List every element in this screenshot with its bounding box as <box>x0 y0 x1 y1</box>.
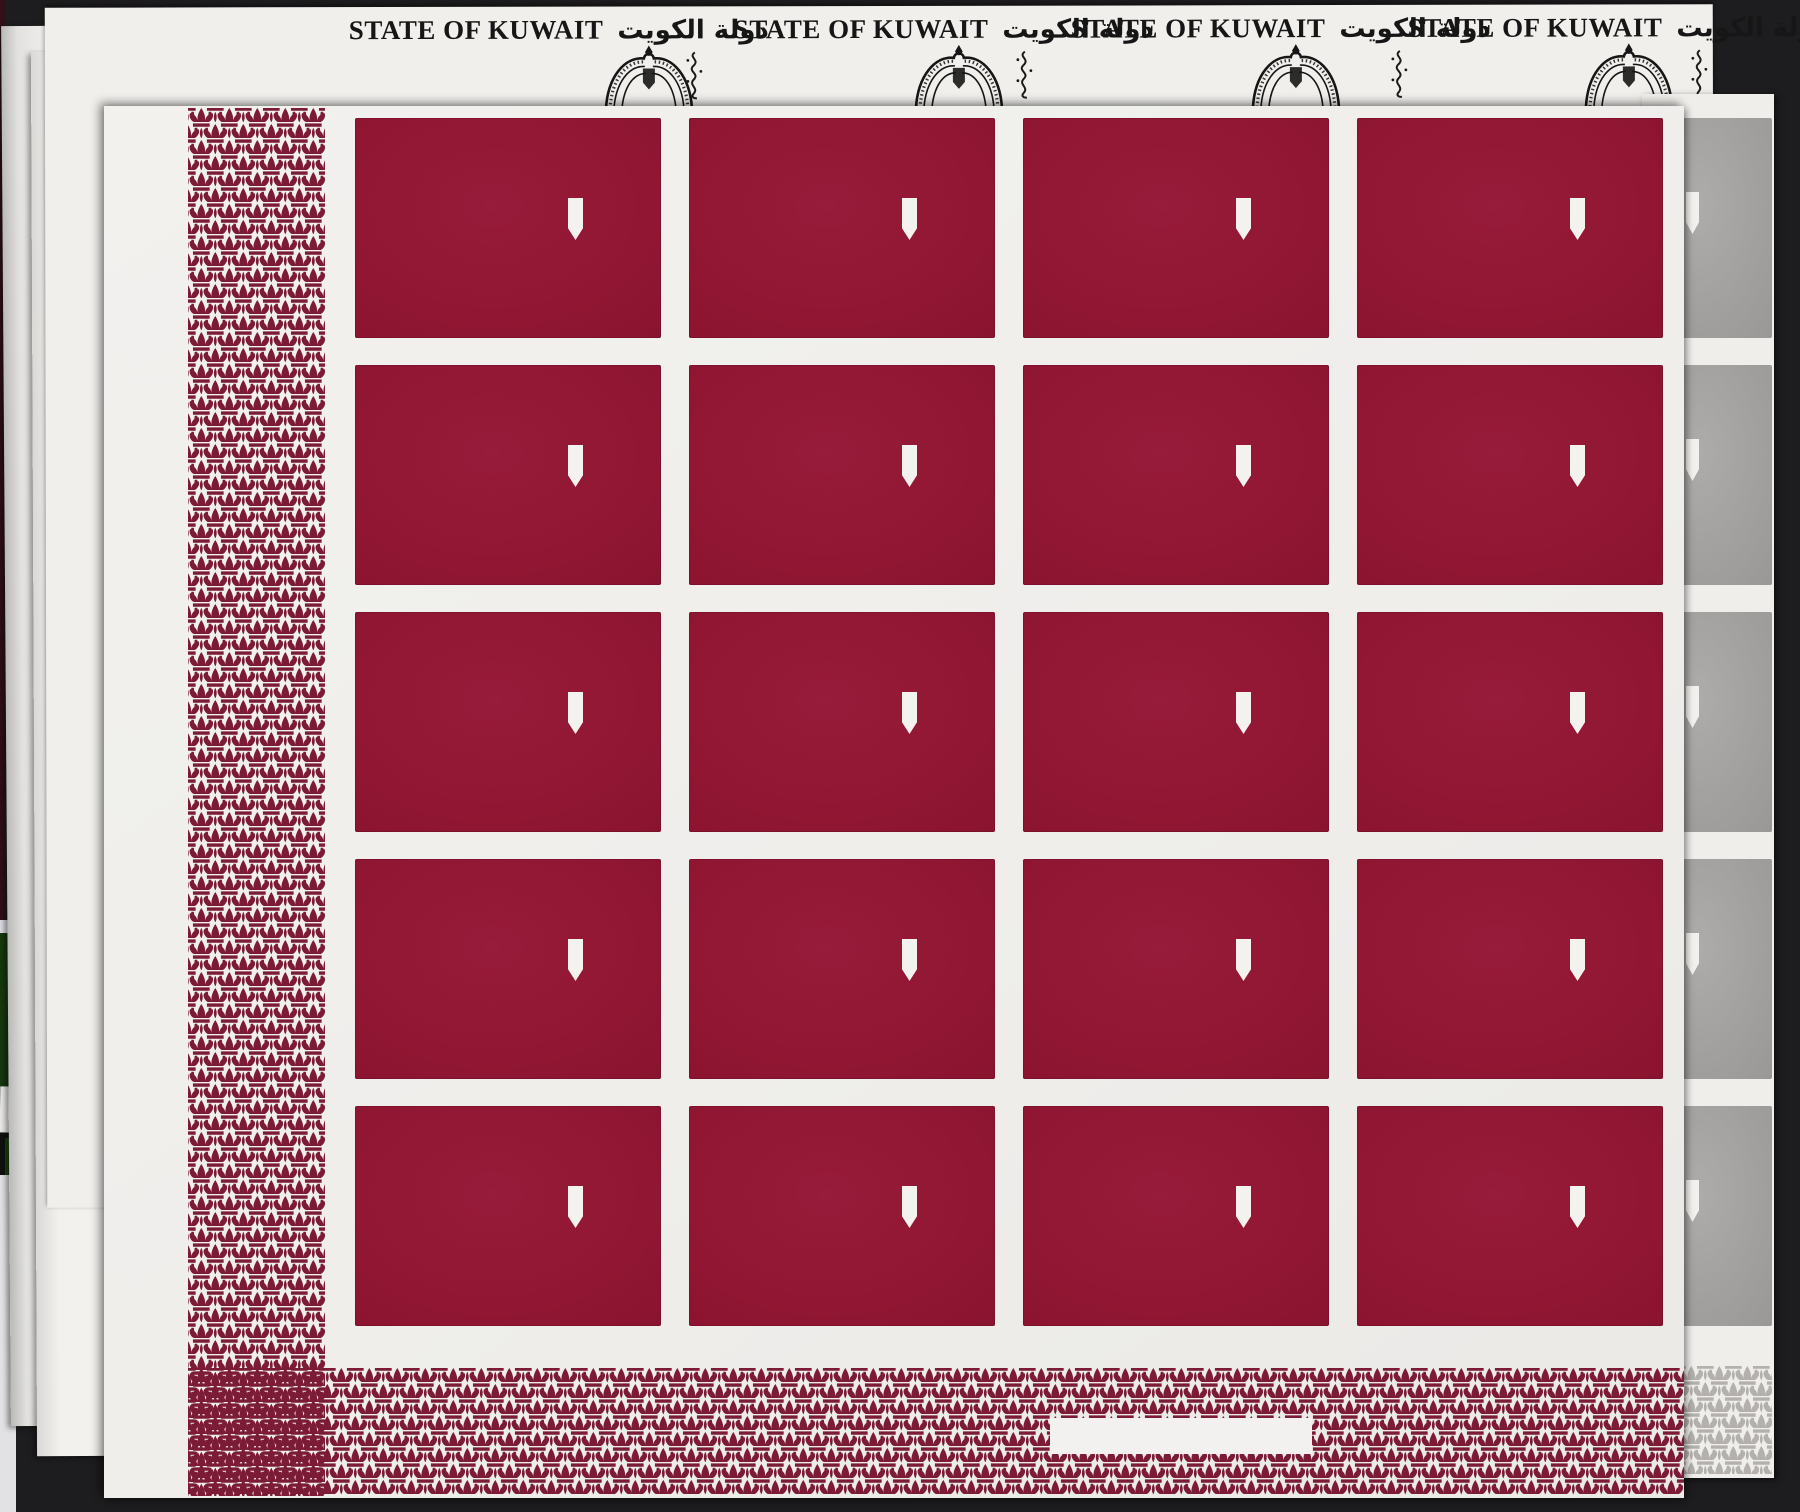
header-title: STATE OF KUWAIT <box>1408 12 1663 44</box>
shield-watermark-icon <box>568 198 583 240</box>
shield-watermark-icon <box>568 445 583 487</box>
shield-watermark-icon <box>1236 1186 1251 1228</box>
shield-watermark-icon <box>1570 198 1585 240</box>
shield-watermark-icon <box>902 1186 917 1228</box>
stamp-proof <box>1023 365 1329 585</box>
stamp-proof <box>355 118 661 338</box>
fleur-border-bottom <box>188 1368 1684 1495</box>
shield-watermark-icon <box>1570 939 1585 981</box>
shield-watermark-icon <box>902 692 917 734</box>
header-title-arabic: دولة الكويت <box>1676 13 1800 43</box>
stamp-proof <box>355 365 661 585</box>
shield-watermark-icon <box>902 198 917 240</box>
header-strip: STATE OF KUWAITدولة الكويت STATE OF KUWA… <box>45 4 1713 7</box>
header-title: STATE OF KUWAIT <box>734 14 989 46</box>
shield-watermark-icon <box>1686 1180 1699 1222</box>
arabic-calligraphy-icon <box>1689 48 1711 98</box>
stamp-proof <box>1023 859 1329 1079</box>
shield-watermark-icon <box>1686 933 1699 975</box>
stamp-proof <box>355 859 661 1079</box>
shield-watermark-icon <box>1570 692 1585 734</box>
stamp-proof <box>1357 859 1663 1079</box>
stamp-proof <box>689 365 995 585</box>
stamp-proof <box>1357 118 1663 338</box>
photo-stamp-proof-sheets: STATE OF KUWAITدولة الكويت STATE OF KUWA… <box>0 0 1800 1512</box>
stamp-proof <box>1357 365 1663 585</box>
shield-watermark-icon <box>568 939 583 981</box>
shield-watermark-icon <box>1236 939 1251 981</box>
header-title: STATE OF KUWAIT <box>349 15 604 47</box>
arabic-calligraphy-icon <box>684 50 706 100</box>
maroon-proof-sheet <box>104 106 1684 1498</box>
stamp-proof <box>689 859 995 1079</box>
shield-watermark-icon <box>1686 192 1699 234</box>
stamp-proof <box>1023 118 1329 338</box>
shield-watermark-icon <box>902 445 917 487</box>
stamp-proof <box>355 612 661 832</box>
shield-watermark-icon <box>1236 692 1251 734</box>
stamp-proof <box>1023 612 1329 832</box>
shield-watermark-icon <box>1236 198 1251 240</box>
stamp-proof <box>1357 1106 1663 1326</box>
arabic-calligraphy-icon <box>1389 49 1411 99</box>
stamp-proof <box>355 1106 661 1326</box>
shield-watermark-icon <box>568 692 583 734</box>
falcon-emblem-icon <box>909 44 1009 108</box>
stamp-proof <box>1357 612 1663 832</box>
fleur-border-left <box>188 108 325 1496</box>
sheet-header: STATE OF KUWAITدولة الكويت <box>349 14 769 46</box>
shield-watermark-icon <box>1570 445 1585 487</box>
header-title: STATE OF KUWAIT <box>1071 13 1326 45</box>
shield-watermark-icon <box>902 939 917 981</box>
shield-watermark-icon <box>1686 439 1699 481</box>
imprint-label-blank <box>1050 1418 1312 1454</box>
sheet-header: STATE OF KUWAITدولة الكويت <box>1408 12 1800 44</box>
stamp-proof <box>689 1106 995 1326</box>
stamp-proof <box>689 118 995 338</box>
stamp-proof <box>1023 1106 1329 1326</box>
shield-watermark-icon <box>568 1186 583 1228</box>
falcon-emblem-icon <box>1246 43 1346 107</box>
shield-watermark-icon <box>1236 445 1251 487</box>
stamp-proof <box>689 612 995 832</box>
arabic-calligraphy-icon <box>1014 50 1036 100</box>
shield-watermark-icon <box>1570 1186 1585 1228</box>
shield-watermark-icon <box>1686 686 1699 728</box>
